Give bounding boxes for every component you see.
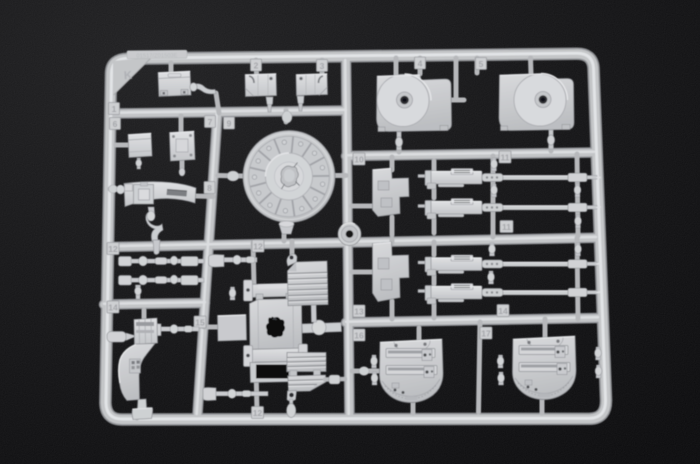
svg-text:3: 3 bbox=[320, 61, 325, 71]
svg-text:13: 13 bbox=[354, 307, 364, 317]
svg-text:01517/Z01503E: 01517/Z01503E bbox=[136, 53, 177, 59]
svg-text:4: 4 bbox=[418, 59, 423, 69]
svg-text:11: 11 bbox=[501, 153, 510, 163]
svg-text:12: 12 bbox=[253, 242, 263, 252]
svg-text:9: 9 bbox=[227, 119, 232, 129]
svg-text:8: 8 bbox=[207, 183, 212, 193]
svg-text:K: K bbox=[124, 70, 134, 83]
svg-text:10: 10 bbox=[354, 155, 364, 165]
svg-text:5: 5 bbox=[479, 59, 484, 69]
svg-text:2: 2 bbox=[254, 61, 259, 71]
svg-text:14: 14 bbox=[498, 306, 508, 316]
svg-text:15: 15 bbox=[195, 318, 205, 328]
svg-text:6: 6 bbox=[113, 119, 118, 129]
svg-text:7: 7 bbox=[208, 117, 213, 127]
svg-text:12: 12 bbox=[253, 408, 263, 418]
svg-text:11: 11 bbox=[502, 222, 511, 232]
svg-text:16: 16 bbox=[354, 331, 364, 341]
svg-text:14: 14 bbox=[108, 303, 118, 313]
svg-text:1: 1 bbox=[112, 104, 117, 114]
svg-text:17: 17 bbox=[481, 329, 491, 339]
svg-text:12: 12 bbox=[108, 244, 118, 254]
